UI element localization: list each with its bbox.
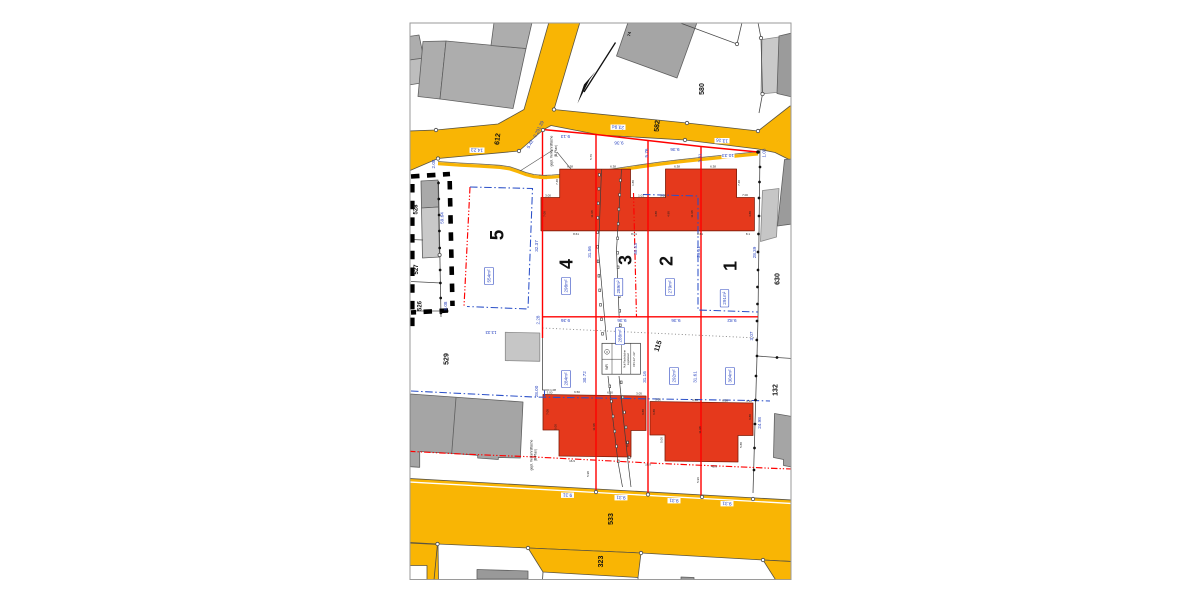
svg-text:612: 612 bbox=[494, 133, 502, 146]
svg-text:9.31: 9.31 bbox=[616, 494, 626, 500]
svg-text:9.36: 9.36 bbox=[614, 140, 624, 146]
svg-text:6.50: 6.50 bbox=[574, 390, 580, 394]
svg-text:(B-Plan): (B-Plan) bbox=[554, 145, 558, 157]
svg-text:554m²: 554m² bbox=[487, 269, 492, 282]
svg-text:o: o bbox=[606, 350, 608, 354]
svg-text:279m²: 279m² bbox=[668, 280, 673, 293]
svg-text:3.07: 3.07 bbox=[749, 331, 754, 340]
svg-text:528: 528 bbox=[414, 204, 420, 215]
svg-text:6.50: 6.50 bbox=[607, 391, 613, 395]
svg-text:6.88: 6.88 bbox=[641, 409, 645, 415]
svg-text:9.31: 9.31 bbox=[722, 500, 732, 506]
svg-text:1.88: 1.88 bbox=[631, 180, 635, 186]
svg-text:11.98: 11.98 bbox=[590, 210, 594, 218]
svg-text:292m²: 292m² bbox=[672, 369, 677, 382]
svg-text:5: 5 bbox=[488, 229, 509, 240]
svg-text:8.08: 8.08 bbox=[443, 301, 448, 310]
svg-text:291m²: 291m² bbox=[722, 291, 727, 304]
svg-text:6.38: 6.38 bbox=[710, 164, 716, 168]
svg-text:11.98: 11.98 bbox=[690, 210, 694, 218]
svg-text:2.08: 2.08 bbox=[431, 159, 436, 168]
svg-text:6.50: 6.50 bbox=[692, 398, 698, 402]
svg-text:6.88: 6.88 bbox=[748, 414, 752, 420]
svg-text:9.36: 9.36 bbox=[561, 317, 571, 323]
svg-text:5.96: 5.96 bbox=[696, 477, 700, 483]
svg-text:9.31: 9.31 bbox=[562, 491, 572, 497]
svg-text:DN 22°-33°: DN 22°-33° bbox=[632, 351, 636, 367]
svg-text:4.88: 4.88 bbox=[654, 211, 658, 217]
svg-text:323: 323 bbox=[598, 556, 605, 568]
svg-text:8.1: 8.1 bbox=[746, 232, 751, 236]
svg-text:11.98: 11.98 bbox=[592, 423, 596, 431]
svg-text:1.08: 1.08 bbox=[550, 388, 556, 392]
svg-text:46.9: 46.9 bbox=[711, 465, 717, 469]
svg-text:288m²: 288m² bbox=[618, 329, 623, 342]
svg-text:6.38: 6.38 bbox=[610, 165, 616, 169]
svg-text:9.36: 9.36 bbox=[617, 317, 627, 323]
svg-text:3.00: 3.00 bbox=[655, 397, 661, 401]
svg-text:1.03: 1.03 bbox=[762, 148, 767, 157]
svg-text:6.50: 6.50 bbox=[722, 398, 728, 402]
svg-text:8.61: 8.61 bbox=[573, 232, 579, 236]
svg-text:304m²: 304m² bbox=[728, 369, 733, 382]
svg-text:4.88: 4.88 bbox=[748, 211, 752, 217]
svg-text:630: 630 bbox=[775, 273, 782, 285]
svg-text:2.28: 2.28 bbox=[536, 315, 541, 324]
svg-text:31.16: 31.16 bbox=[642, 371, 647, 383]
svg-text:16.9: 16.9 bbox=[569, 459, 575, 463]
svg-text:5.76: 5.76 bbox=[644, 148, 649, 157]
svg-text:28.00: 28.00 bbox=[534, 385, 539, 397]
svg-text:7.08: 7.08 bbox=[543, 211, 547, 217]
svg-text:132: 132 bbox=[773, 384, 780, 396]
svg-text:3: 3 bbox=[616, 255, 636, 265]
svg-text:4: 4 bbox=[557, 259, 577, 269]
svg-text:298m²: 298m² bbox=[564, 279, 569, 292]
svg-text:13.33: 13.33 bbox=[485, 330, 497, 335]
svg-text:289m²: 289m² bbox=[616, 280, 621, 293]
svg-text:580: 580 bbox=[699, 83, 706, 95]
svg-text:526: 526 bbox=[418, 300, 424, 311]
svg-text:29.51: 29.51 bbox=[696, 246, 701, 258]
svg-text:8.01: 8.01 bbox=[631, 232, 637, 236]
svg-text:3.00: 3.00 bbox=[660, 194, 666, 198]
svg-text:2: 2 bbox=[657, 256, 677, 266]
svg-text:582: 582 bbox=[654, 120, 662, 132]
svg-text:6.38: 6.38 bbox=[567, 165, 573, 169]
svg-text:10.33: 10.33 bbox=[722, 152, 734, 158]
svg-text:7.48: 7.48 bbox=[737, 180, 741, 186]
svg-text:7.08: 7.08 bbox=[546, 409, 550, 415]
svg-text:9.82: 9.82 bbox=[727, 317, 737, 323]
svg-text:14.23: 14.23 bbox=[471, 146, 484, 153]
svg-text:7.00: 7.00 bbox=[742, 193, 748, 197]
svg-text:5.76: 5.76 bbox=[589, 154, 593, 160]
svg-text:30.53: 30.53 bbox=[633, 243, 638, 255]
svg-text:6.38: 6.38 bbox=[674, 164, 680, 168]
svg-text:zugelassen: zugelassen bbox=[627, 352, 630, 365]
svg-text:8.61: 8.61 bbox=[697, 232, 703, 236]
svg-text:5.00: 5.00 bbox=[660, 437, 664, 443]
svg-text:7.48: 7.48 bbox=[555, 179, 559, 185]
svg-text:9.13: 9.13 bbox=[561, 133, 571, 139]
svg-text:5.00: 5.00 bbox=[554, 424, 558, 430]
svg-text:8.01: 8.01 bbox=[626, 441, 630, 447]
svg-text:30.72: 30.72 bbox=[582, 371, 587, 383]
svg-text:1.01: 1.01 bbox=[638, 194, 644, 198]
svg-text:3.05: 3.05 bbox=[636, 391, 642, 395]
svg-text:9.36: 9.36 bbox=[670, 146, 680, 152]
svg-text:32.37: 32.37 bbox=[534, 240, 539, 252]
svg-text:24.98: 24.98 bbox=[757, 417, 762, 429]
svg-text:3.31: 3.31 bbox=[698, 153, 703, 162]
svg-text:11.98: 11.98 bbox=[698, 426, 702, 434]
svg-text:28.39: 28.39 bbox=[752, 246, 757, 258]
svg-text:3.10: 3.10 bbox=[746, 399, 752, 403]
svg-text:5.88: 5.88 bbox=[739, 442, 743, 448]
svg-text:59.64: 59.64 bbox=[440, 212, 445, 224]
svg-text:31.61: 31.61 bbox=[693, 371, 698, 383]
svg-text:1: 1 bbox=[721, 261, 741, 271]
svg-text:533: 533 bbox=[608, 513, 615, 525]
svg-text:527: 527 bbox=[414, 264, 420, 275]
svg-text:(B-Plan): (B-Plan) bbox=[534, 449, 538, 461]
svg-text:284m²: 284m² bbox=[564, 372, 569, 385]
svg-text:16.9: 16.9 bbox=[645, 463, 651, 467]
svg-text:5.98: 5.98 bbox=[586, 471, 590, 477]
svg-text:6.88: 6.88 bbox=[652, 409, 656, 415]
svg-text:9.36: 9.36 bbox=[671, 317, 681, 323]
svg-text:31.56: 31.56 bbox=[587, 246, 592, 258]
svg-text:529: 529 bbox=[444, 353, 451, 365]
svg-text:3.00: 3.00 bbox=[545, 194, 551, 198]
svg-text:9.31: 9.31 bbox=[669, 497, 679, 503]
svg-text:4.88: 4.88 bbox=[667, 211, 671, 217]
svg-text:gepl. Verkehrsfläche: gepl. Verkehrsfläche bbox=[550, 136, 554, 167]
svg-text:WR: WR bbox=[605, 364, 609, 370]
